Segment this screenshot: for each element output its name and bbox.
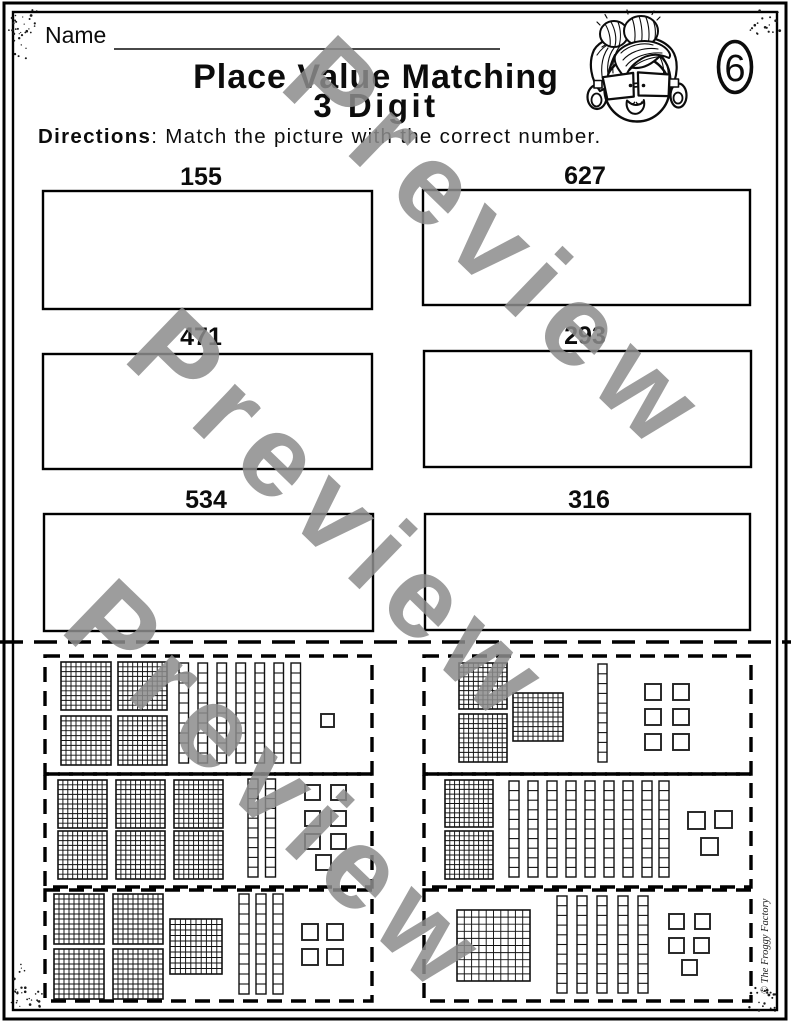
svg-text:534: 534 <box>185 486 227 514</box>
svg-text:© The Froggy Factory: © The Froggy Factory <box>760 898 771 994</box>
svg-text:Name: Name <box>45 22 106 48</box>
svg-text:155: 155 <box>180 163 222 191</box>
svg-text:316: 316 <box>568 486 610 514</box>
svg-text:6: 6 <box>724 48 745 90</box>
svg-text:627: 627 <box>564 162 606 190</box>
